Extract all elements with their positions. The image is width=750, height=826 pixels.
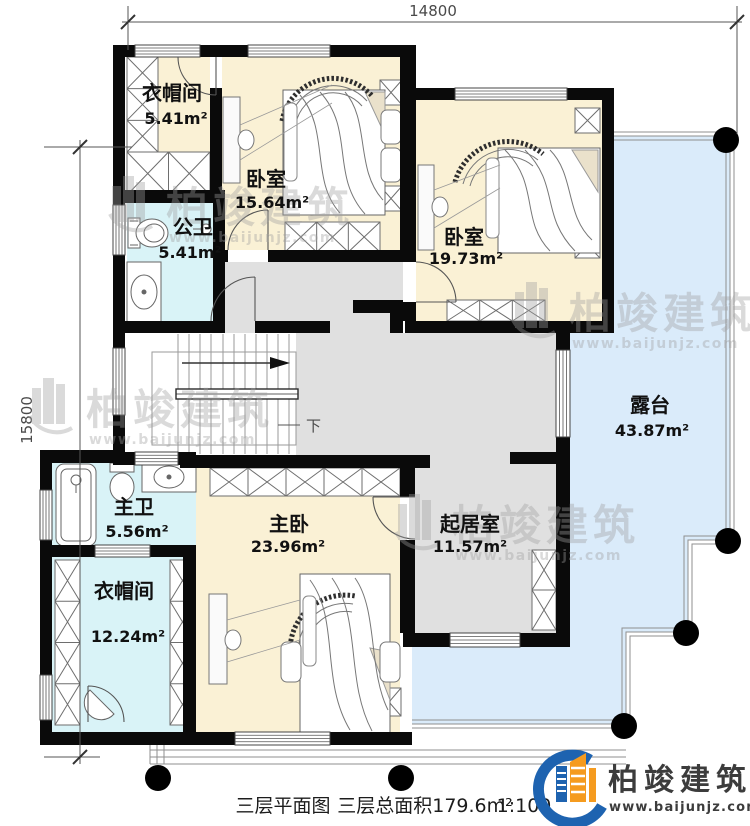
room-area: 19.73m² xyxy=(429,249,503,268)
room-area: 11.57m² xyxy=(433,537,507,556)
logo-url: www.baijunjz.com xyxy=(609,800,750,815)
stair-down-label: 下 xyxy=(306,417,321,435)
room-label: 露台 xyxy=(630,393,670,417)
room-area: 43.87m² xyxy=(615,421,689,440)
column xyxy=(715,528,741,554)
room-label: 衣帽间 xyxy=(94,579,154,603)
room-area: 5.56m² xyxy=(105,522,168,541)
column xyxy=(673,620,699,646)
wardrobe-master-bedroom xyxy=(210,468,400,496)
room-area: 5.41m² xyxy=(144,109,207,128)
room-label: 卧室 xyxy=(444,225,484,249)
logo-name: 柏竣建筑 xyxy=(608,763,750,798)
room-label: 公卫 xyxy=(173,215,213,239)
window-master-bedroom xyxy=(235,732,330,745)
watermark: 柏竣建筑 www.baijunjz.com xyxy=(30,378,274,448)
partition-cloakroom-lower xyxy=(95,545,150,557)
wardrobe-cloakroom-lower-left xyxy=(55,560,80,725)
window-master-bathroom xyxy=(40,490,52,540)
room-area: 12.24m² xyxy=(91,627,165,646)
column xyxy=(145,765,171,791)
room-label: 卧室 xyxy=(246,167,286,191)
window-living-room xyxy=(450,633,520,647)
room-label: 衣帽间 xyxy=(142,81,202,105)
floor-plan-page: 下 xyxy=(0,0,750,826)
column xyxy=(713,127,739,153)
room-label: 起居室 xyxy=(439,512,500,536)
watermark-url: www.baijunjz.com xyxy=(89,432,256,448)
watermark-text: 柏竣建筑 xyxy=(569,289,750,338)
floor-plan-drawing: 下 xyxy=(0,0,750,826)
nightstand-bedroom-2-top xyxy=(575,108,600,133)
window-bedroom-2 xyxy=(455,88,567,100)
logo: 柏竣建筑 www.baijunjz.com xyxy=(538,753,750,823)
partition-master-bathroom xyxy=(135,452,178,465)
room-area: 15.64m² xyxy=(235,193,309,212)
room-area: 5.41m² xyxy=(158,243,221,262)
terrace-sliding-door xyxy=(556,350,570,437)
room-label: 主卧 xyxy=(269,512,309,536)
window-bedroom-1 xyxy=(248,45,330,57)
caption-total-area: 三层总面积179.6m² xyxy=(337,795,513,817)
column xyxy=(611,713,637,739)
window-cloakroom-lower xyxy=(40,675,52,720)
window-cloakroom-upper xyxy=(135,45,200,57)
column xyxy=(388,765,414,791)
watermark-url: www.baijunjz.com xyxy=(572,336,739,352)
caption-title: 三层平面图 xyxy=(235,795,330,817)
room-label: 主卫 xyxy=(114,495,154,519)
room-area: 23.96m² xyxy=(251,537,325,556)
watermark-text: 柏竣建筑 xyxy=(86,385,274,434)
dimension-top-value: 14800 xyxy=(409,2,457,20)
caption: 三层平面图 三层总面积179.6m² 1:100 xyxy=(235,795,551,817)
